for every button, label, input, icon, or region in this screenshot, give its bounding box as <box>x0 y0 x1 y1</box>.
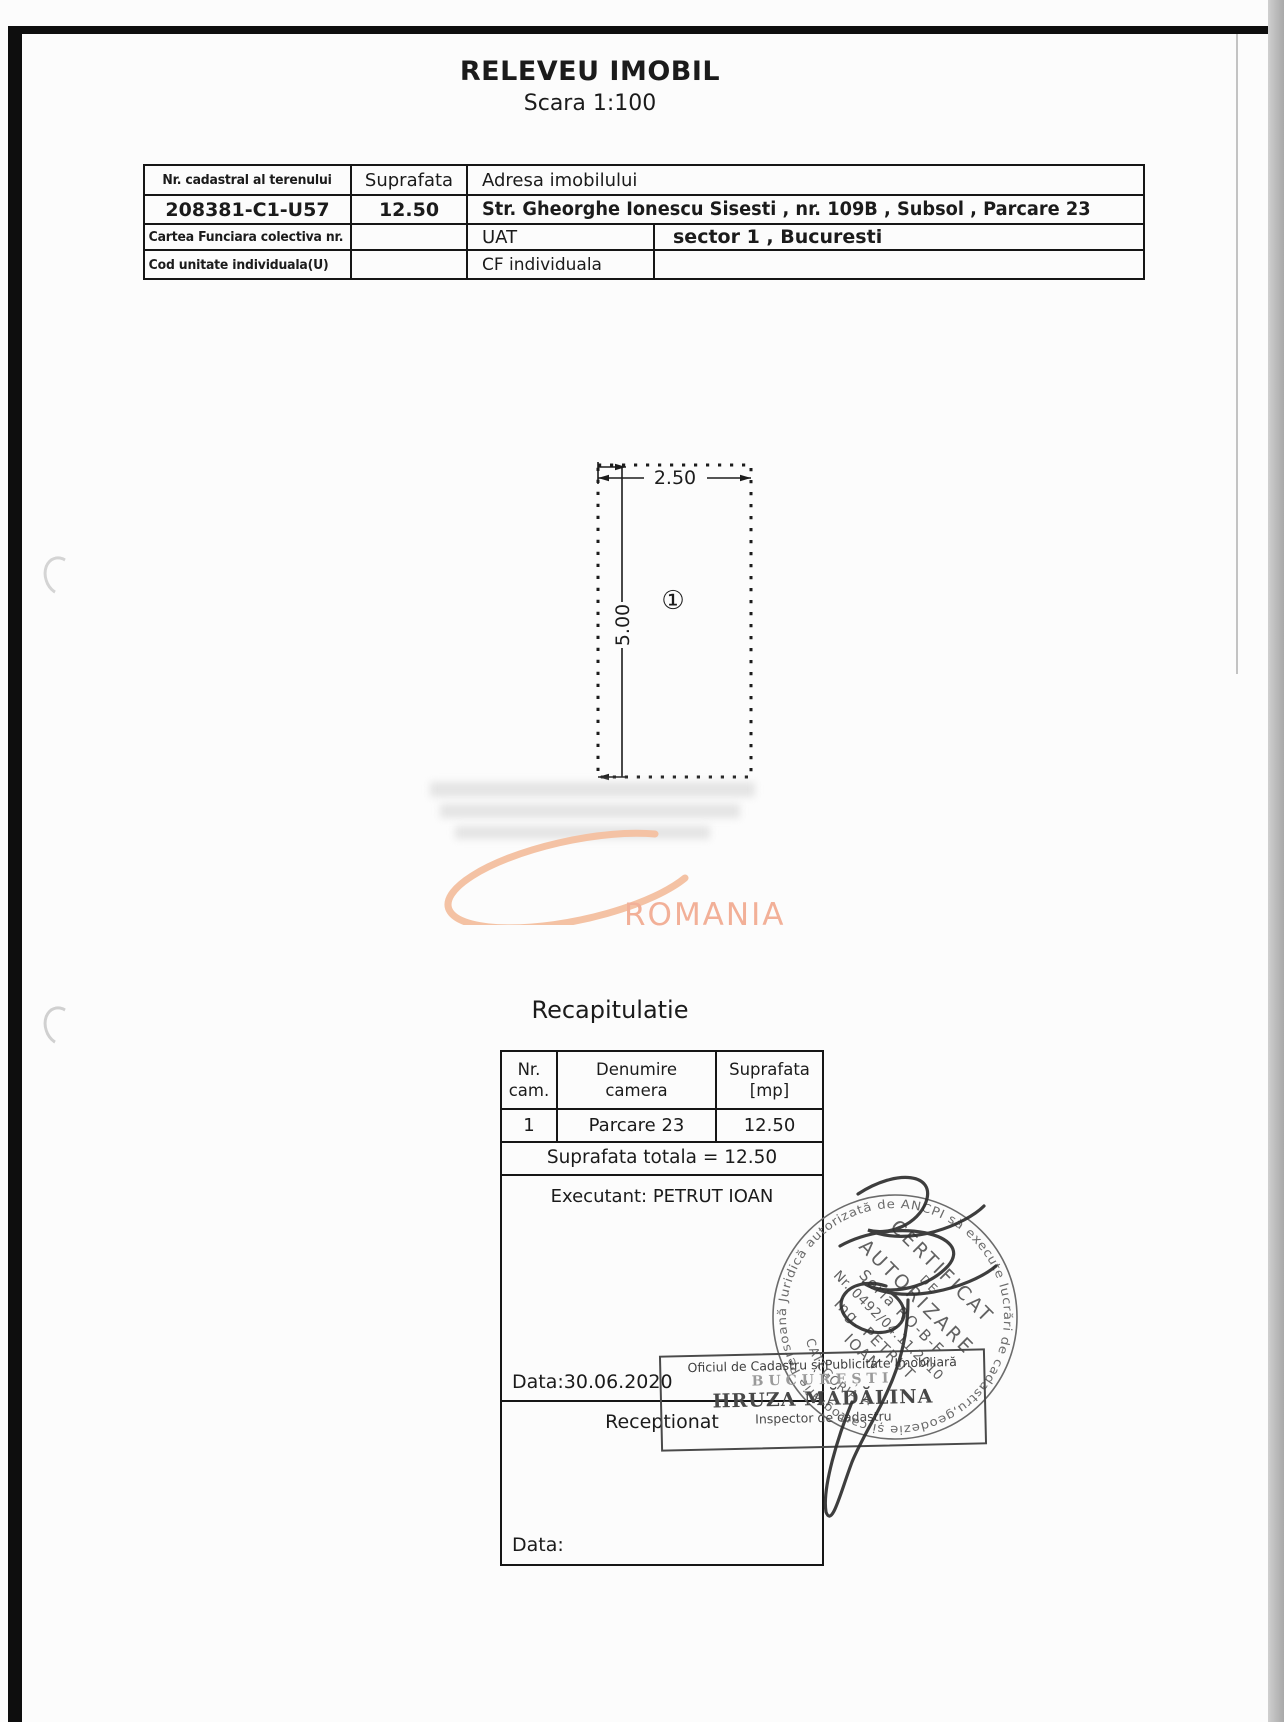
recap-row-name: Parcare 23 <box>558 1110 717 1143</box>
paper-edge-line <box>1236 34 1238 674</box>
land-book-value-cell <box>352 225 468 251</box>
width-dimension-label: 2.50 <box>654 467 696 489</box>
recap-row-nr: 1 <box>502 1110 558 1143</box>
title-block: RELEVEU IMOBIL Scara 1:100 <box>0 56 1180 116</box>
floor-plan-drawing: 2.50 5.00 ① <box>540 420 800 820</box>
header-address-label: Adresa imobilului <box>482 170 637 191</box>
recap-header-nr-line1: Nr. <box>518 1059 541 1080</box>
recap-header-suprafata: Suprafata [mp] <box>717 1052 822 1110</box>
cf-individual-label: CF individuala <box>482 255 602 275</box>
cf-value-cell <box>655 251 1143 278</box>
scale-label: Scara 1:100 <box>0 91 1180 116</box>
land-book-label: Cartea Funciara colectiva nr. <box>145 229 343 245</box>
address-value: Str. Gheorghe Ionescu Sisesti , nr. 109B… <box>482 199 1091 220</box>
uat-label-cell: UAT <box>468 225 655 251</box>
dim-arrow-left <box>598 475 609 481</box>
scan-edge-right <box>1268 0 1284 1722</box>
uat-value-cell: sector 1 , Bucuresti <box>655 225 1143 251</box>
recap-header-denumire: Denumire camera <box>558 1052 717 1110</box>
recap-title: Recapitulatie <box>520 996 700 1024</box>
header-area-label: Suprafata <box>365 170 453 191</box>
cadastral-number: 208381-C1-U57 <box>165 199 329 221</box>
address-value-cell: Str. Gheorghe Ionescu Sisesti , nr. 109B… <box>468 196 1143 225</box>
watermark-text: ROMANIA <box>624 897 785 933</box>
watermark-smudge <box>430 782 755 797</box>
uat-label: UAT <box>482 227 517 248</box>
header-cadastral-label: Nr. cadastral al terenului <box>163 172 332 188</box>
height-dimension-label: 5.00 <box>612 604 634 646</box>
header-cadastral-cell: Nr. cadastral al terenului <box>145 166 352 196</box>
cadastral-number-cell: 208381-C1-U57 <box>145 196 352 225</box>
handwritten-signature <box>740 1150 1060 1580</box>
area-value: 12.50 <box>379 199 439 221</box>
receptionat-date: Data: <box>512 1533 564 1558</box>
recap-header-den-line1: Denumire <box>596 1059 677 1080</box>
room-number-label: ① <box>661 586 684 616</box>
recap-header-nr-line2: cam. <box>509 1080 550 1101</box>
page-title: RELEVEU IMOBIL <box>0 56 1180 87</box>
unit-code-label: Cod unitate individuala(U) <box>145 257 328 273</box>
land-book-cell: Cartea Funciara colectiva nr. <box>145 225 352 251</box>
dim-arrow-bottom <box>598 774 609 780</box>
recap-header-sup-line2: [mp] <box>750 1080 789 1101</box>
scan-border-top <box>8 26 1270 34</box>
area-value-cell: 12.50 <box>352 196 468 225</box>
executant-date: Data:30.06.2020 <box>512 1370 673 1395</box>
unit-code-cell: Cod unitate individuala(U) <box>145 251 352 278</box>
recap-row-area: 12.50 <box>717 1110 822 1143</box>
scan-border-left <box>8 26 22 1722</box>
dim-arrow-right <box>740 475 751 481</box>
cadastral-info-table: Nr. cadastral al terenului Suprafata Adr… <box>143 164 1145 280</box>
scan-mark-bottom <box>39 1002 82 1050</box>
scanned-document-page: RELEVEU IMOBIL Scara 1:100 Nr. cadastral… <box>0 0 1284 1722</box>
recap-header-sup-line1: Suprafata <box>729 1059 810 1080</box>
header-area-cell: Suprafata <box>352 166 468 196</box>
cf-label-cell: CF individuala <box>468 251 655 278</box>
uat-value: sector 1 , Bucuresti <box>673 226 882 248</box>
unit-code-value-cell <box>352 251 468 278</box>
recap-header-nr: Nr. cam. <box>502 1052 558 1110</box>
recap-header-den-line2: camera <box>605 1080 667 1101</box>
scan-mark-top <box>39 552 82 600</box>
header-address-cell: Adresa imobilului <box>468 166 1143 196</box>
